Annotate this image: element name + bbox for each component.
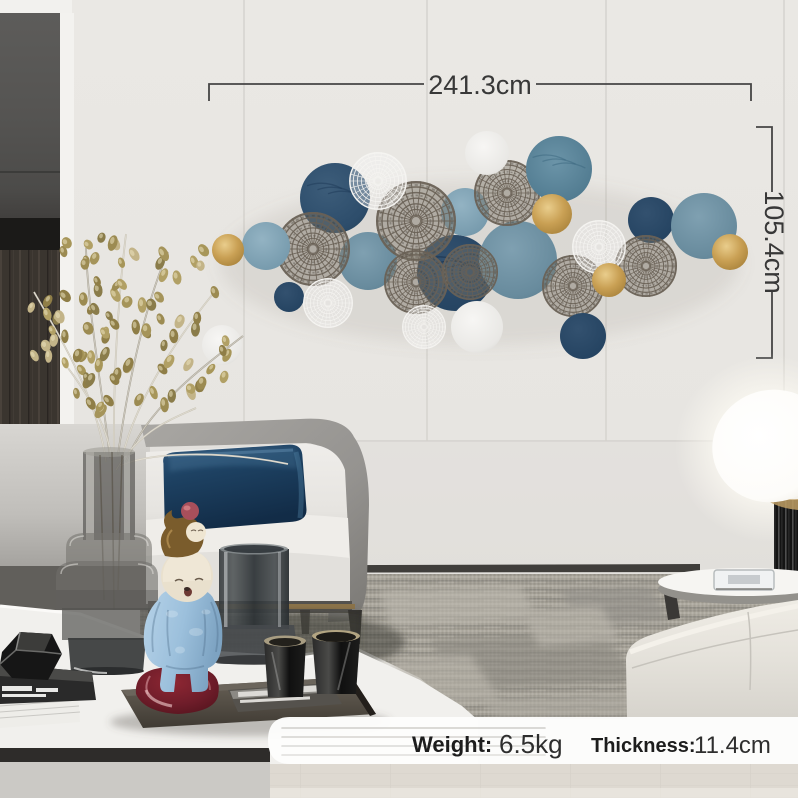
svg-text:Thickness:: Thickness: bbox=[591, 735, 695, 757]
svg-text:6.5kg: 6.5kg bbox=[499, 729, 563, 759]
svg-text:11.4cm: 11.4cm bbox=[694, 732, 771, 759]
svg-text:105.4cm: 105.4cm bbox=[759, 190, 789, 294]
svg-text:241.3cm: 241.3cm bbox=[428, 70, 532, 100]
svg-text:Weight:: Weight: bbox=[412, 732, 492, 757]
